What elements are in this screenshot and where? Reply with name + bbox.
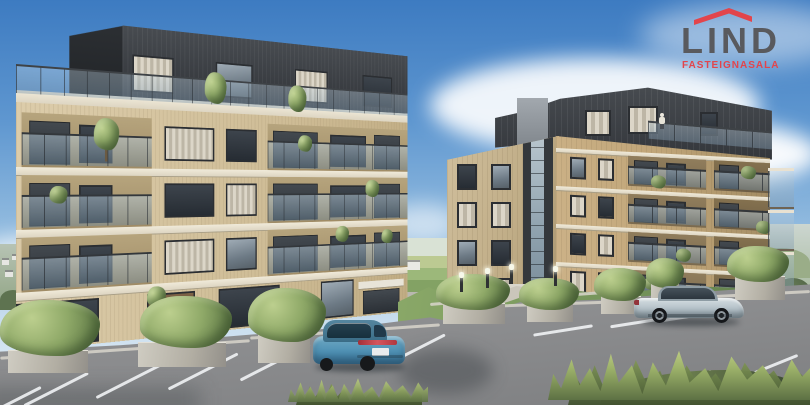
person-on-terrace bbox=[659, 113, 665, 129]
grass-blades bbox=[288, 374, 428, 402]
entrance-door bbox=[363, 288, 399, 315]
balcony bbox=[628, 156, 706, 190]
balcony-railing bbox=[268, 193, 408, 222]
balcony-plant bbox=[651, 175, 666, 189]
tree-foliage bbox=[94, 118, 119, 151]
car-taillight bbox=[358, 340, 397, 345]
foreground-grass bbox=[548, 342, 810, 405]
balcony-railing bbox=[628, 204, 706, 226]
protruding-balcony bbox=[768, 168, 794, 209]
balcony-plant bbox=[365, 180, 379, 197]
brand-tagline: FASTEIGNASALA bbox=[682, 61, 779, 71]
left-building-body bbox=[16, 0, 408, 352]
person-torso bbox=[659, 117, 665, 124]
window bbox=[570, 233, 586, 256]
car-silver-coupe bbox=[634, 286, 746, 326]
window bbox=[164, 126, 214, 161]
protruding-balcony bbox=[768, 210, 794, 251]
foreground-grass bbox=[288, 374, 428, 405]
balcony-tree bbox=[94, 118, 119, 162]
window bbox=[598, 196, 614, 219]
balcony-railing bbox=[714, 246, 770, 267]
balcony-railing bbox=[628, 242, 706, 264]
roof-terrace-shrub bbox=[205, 71, 227, 104]
balcony bbox=[268, 177, 408, 223]
window bbox=[598, 158, 614, 181]
balcony-railing bbox=[22, 132, 152, 167]
car-skirt bbox=[648, 314, 732, 317]
balcony bbox=[714, 236, 770, 269]
left-building-facade bbox=[16, 102, 408, 352]
car-taillight bbox=[634, 300, 639, 305]
balcony bbox=[628, 232, 706, 266]
balcony-plant bbox=[676, 248, 691, 262]
car-blue-sedan bbox=[313, 320, 407, 374]
distant-house bbox=[2, 258, 9, 265]
balcony bbox=[22, 175, 152, 230]
window bbox=[164, 239, 214, 275]
balcony bbox=[22, 234, 152, 293]
balcony bbox=[628, 194, 706, 228]
distant-house bbox=[5, 270, 13, 277]
window bbox=[570, 271, 586, 294]
car-wheel bbox=[360, 356, 375, 371]
tree-trunk bbox=[105, 148, 108, 161]
window bbox=[598, 234, 614, 257]
balcony-railing bbox=[628, 166, 706, 188]
balcony-plant bbox=[50, 186, 68, 204]
balcony bbox=[268, 124, 408, 172]
ground-shadow bbox=[0, 388, 200, 405]
balcony-plant bbox=[741, 166, 756, 180]
protruding-balcony bbox=[768, 252, 794, 289]
grass-blades bbox=[548, 342, 810, 400]
penthouse-window bbox=[585, 110, 611, 136]
car-windows bbox=[661, 288, 715, 299]
window bbox=[226, 129, 257, 163]
balcony-plant bbox=[336, 226, 349, 242]
balcony-railing bbox=[268, 141, 408, 171]
window bbox=[226, 183, 257, 216]
brand-name: LIND bbox=[681, 23, 781, 59]
balcony bbox=[22, 112, 152, 168]
window bbox=[226, 237, 257, 271]
balcony-plant bbox=[298, 135, 312, 152]
ground-floor-window bbox=[321, 279, 354, 319]
brand-logo: LIND FASTEIGNASALA bbox=[674, 8, 806, 74]
roof-terrace-shrub bbox=[288, 85, 306, 113]
car-rear-window bbox=[327, 323, 371, 338]
balcony-railing bbox=[22, 194, 152, 228]
window bbox=[164, 183, 214, 217]
render-image: LIND FASTEIGNASALA bbox=[0, 0, 810, 405]
balcony-plant bbox=[381, 229, 392, 243]
ground-floor-window bbox=[219, 285, 280, 330]
window bbox=[570, 157, 586, 180]
ground-floor-window bbox=[35, 298, 99, 348]
car-wheel bbox=[320, 358, 333, 371]
person-legs bbox=[660, 124, 664, 129]
window bbox=[570, 195, 586, 218]
